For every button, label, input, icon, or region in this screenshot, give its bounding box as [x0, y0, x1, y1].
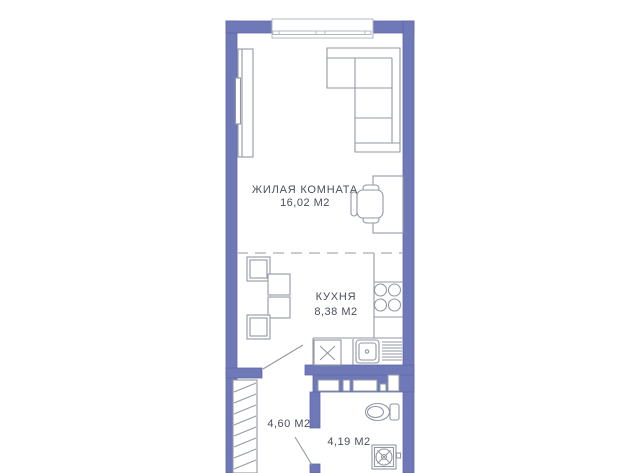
wall-right — [403, 21, 414, 473]
window-icon — [272, 19, 373, 38]
toilet-icon — [366, 404, 400, 421]
living-room-name-label: ЖИЛАЯ КОМНАТА — [252, 184, 358, 196]
appliance-x-icon — [314, 340, 341, 365]
wall-kitchen-bottom — [305, 365, 414, 375]
floor-plan-canvas: ЖИЛАЯ КОМНАТА 16,02 М2 КУХНЯ 8,38 М2 4,6… — [0, 0, 640, 473]
hallway-area-label: 4,60 М2 — [267, 418, 310, 430]
bathroom-area-label: 4,19 М2 — [327, 436, 370, 448]
wall-hallway-top-stub — [226, 368, 262, 378]
wall-bathroom-left — [310, 392, 320, 428]
wall-bathroom-left-stub — [310, 464, 320, 473]
apartment-floor-plan: ЖИЛАЯ КОМНАТА 16,02 М2 КУХНЯ 8,38 М2 4,6… — [0, 0, 640, 473]
kitchen-area-label: 8,38 М2 — [314, 306, 357, 318]
hallway-closet-icon — [233, 380, 257, 473]
sink-icon — [356, 340, 379, 363]
dish-rack-icon — [382, 342, 402, 360]
wall-top-left — [226, 21, 272, 33]
living-room-area-label: 16,02 М2 — [280, 197, 330, 209]
washing-machine-icon — [372, 445, 401, 469]
kitchen-name-label: КУХНЯ — [316, 291, 357, 303]
wardrobe-icon — [236, 49, 254, 157]
